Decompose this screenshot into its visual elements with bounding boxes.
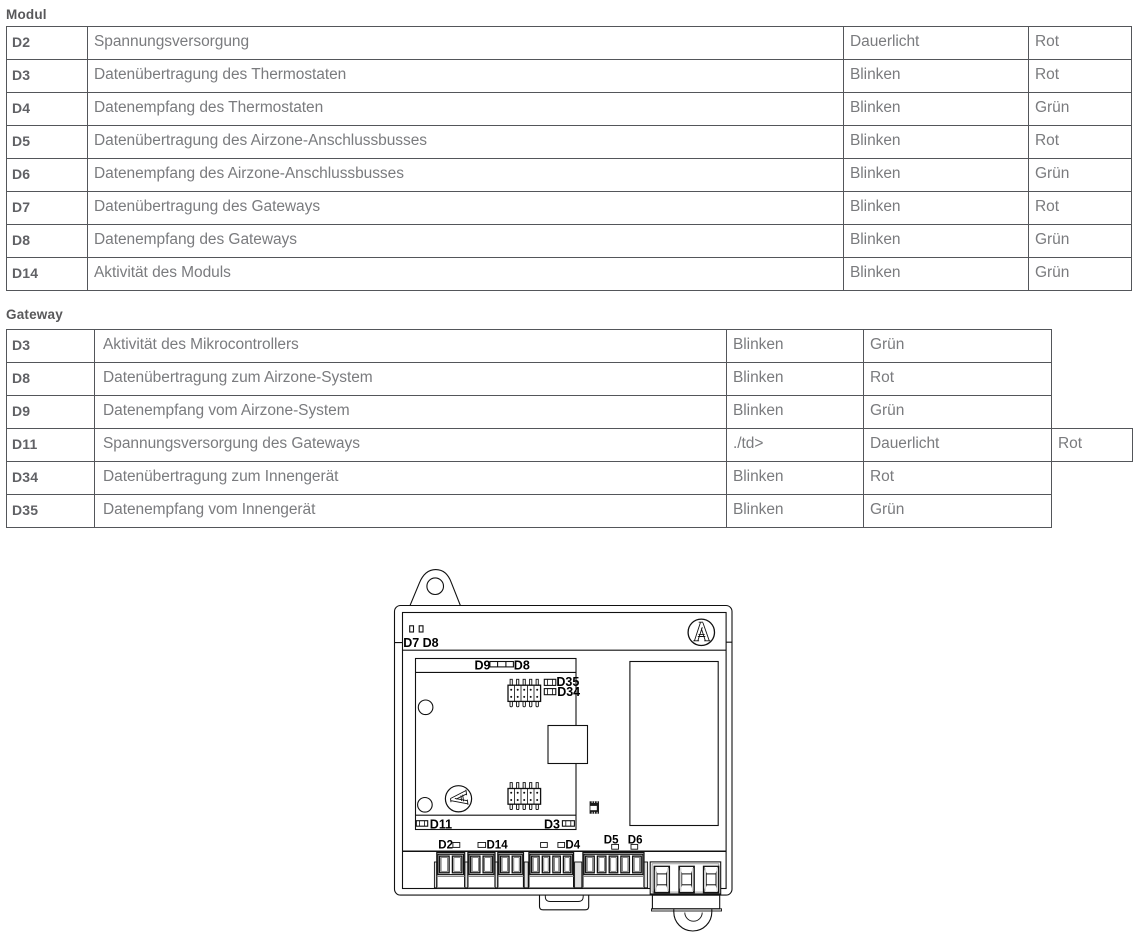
svg-text:D3: D3 — [544, 818, 560, 832]
svg-text:D8: D8 — [514, 658, 530, 672]
svg-text:D7 D8: D7 D8 — [403, 636, 438, 650]
svg-text:D6: D6 — [628, 835, 643, 847]
svg-text:D14: D14 — [487, 840, 509, 852]
svg-text:D5: D5 — [604, 835, 619, 847]
svg-text:D4: D4 — [565, 840, 580, 852]
svg-text:D34: D34 — [557, 685, 580, 699]
svg-text:D9: D9 — [475, 658, 491, 672]
svg-text:D2: D2 — [438, 840, 453, 852]
svg-text:D11: D11 — [430, 818, 452, 832]
